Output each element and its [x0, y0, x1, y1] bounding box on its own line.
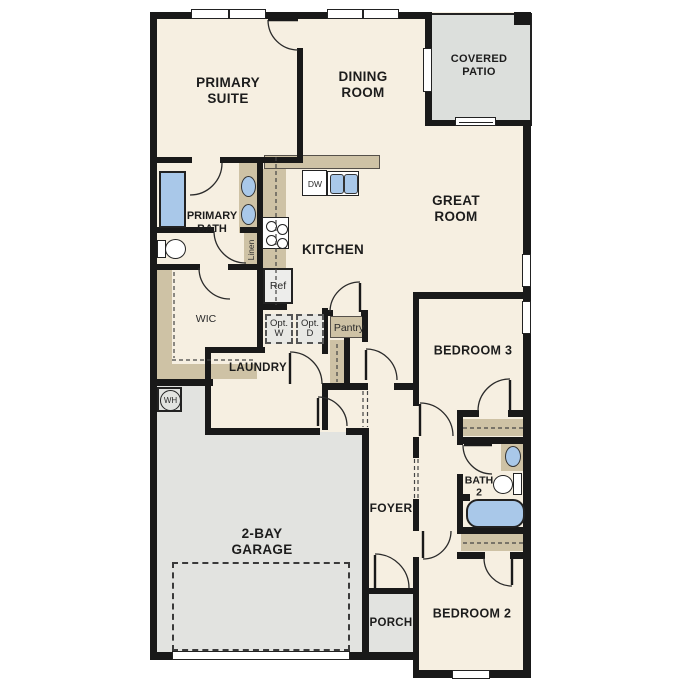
- refrigerator: Ref: [263, 268, 293, 304]
- window-bedroom2: [452, 670, 490, 679]
- room-label-bath2: BATH2: [465, 475, 493, 498]
- wall-bath2-west-b: [457, 474, 463, 530]
- optional-dryer-label: Opt.D: [301, 319, 319, 340]
- dishwasher-label: DW: [307, 179, 323, 189]
- hall-closet: [330, 340, 345, 383]
- wall-bedroom3-north: [413, 292, 531, 299]
- wall-kitchen-stub: [263, 303, 287, 310]
- wall-bath2-west-a: [457, 437, 463, 445]
- garage-door-outline: [172, 562, 350, 651]
- wall-east-d: [413, 557, 419, 673]
- wall-tub-bottom: [457, 527, 531, 534]
- wall-closet2-bottom-b: [510, 552, 531, 559]
- bedroom3-closet: [461, 419, 527, 436]
- floor-plan: Ref DW Opt.W Opt.D WH: [0, 0, 687, 687]
- wall-east-a: [413, 292, 419, 406]
- wall-porch-bottom: [368, 652, 415, 660]
- wall-hall-south-a: [322, 383, 368, 390]
- wall-garage-east: [362, 428, 369, 660]
- wall-wic-north-a: [156, 264, 200, 270]
- garage-door: [172, 651, 350, 660]
- wall-laundry-west: [205, 347, 211, 434]
- wall-suite-dining: [297, 48, 303, 160]
- patio-sliding-door: [455, 117, 496, 126]
- room-label-bedroom2: BEDROOM 2: [433, 607, 511, 622]
- wall-pantry-a: [328, 310, 333, 316]
- wall-foyer-porch: [368, 588, 415, 594]
- wall-east-b: [413, 437, 419, 458]
- bath2-toilet-bowl: [493, 475, 513, 494]
- wall-left: [150, 12, 157, 660]
- label-linen: Linen: [246, 240, 256, 261]
- wall-wic-south: [156, 379, 213, 386]
- wall-suite-bottom-a: [156, 157, 192, 163]
- room-label-bedroom3: BEDROOM 3: [434, 344, 512, 359]
- label-pantry: Pantry: [334, 322, 364, 334]
- toilet-primary-bowl: [165, 239, 186, 259]
- window-bedroom3: [522, 301, 531, 334]
- kitchen-sink: [327, 171, 359, 196]
- wall-laundry-north: [205, 347, 265, 353]
- room-label-kitchen: KITCHEN: [302, 242, 364, 258]
- wall-garage-north-a: [205, 428, 320, 435]
- wall-hall-closet-east: [344, 338, 350, 388]
- optional-washer: Opt.W: [265, 314, 293, 344]
- floor-foyer: [365, 383, 417, 592]
- bedroom2-closet: [461, 534, 527, 551]
- vanity-sink-1: [241, 176, 256, 197]
- room-label-wic: WIC: [196, 313, 216, 325]
- refrigerator-label: Ref: [270, 280, 286, 292]
- window-dining: [327, 9, 399, 19]
- range: [262, 217, 289, 249]
- dishwasher: DW: [302, 170, 327, 196]
- bath2-sink: [505, 446, 521, 467]
- wall-bedroom3-south-b: [508, 410, 531, 417]
- wall-closet2-bottom-a: [457, 552, 485, 559]
- room-label-laundry: LAUNDRY: [229, 362, 287, 376]
- room-label-primary-suite: PRIMARYSUITE: [196, 75, 260, 107]
- wall-bath-south-b: [240, 227, 258, 233]
- room-label-porch: PORCH: [369, 617, 412, 631]
- patio-post: [514, 12, 531, 25]
- room-label-primary-bath: PRIMARYBATH: [187, 210, 237, 236]
- wall-right: [523, 120, 531, 678]
- optional-dryer: Opt.D: [296, 314, 324, 344]
- room-label-dining-room: DININGROOM: [338, 69, 387, 101]
- wall-wic-north-b: [228, 264, 258, 270]
- wall-closet3-bottom: [457, 437, 531, 444]
- wall-east-c: [413, 499, 419, 531]
- water-heater-box: WH: [157, 387, 182, 412]
- room-label-foyer: FOYER: [370, 501, 413, 515]
- bath2-toilet-tank: [513, 473, 522, 495]
- room-label-covered-patio: COVEREDPATIO: [451, 53, 508, 79]
- window-dining-east: [423, 48, 432, 92]
- window-great-room: [522, 254, 531, 287]
- optional-washer-label: Opt.W: [270, 319, 288, 340]
- bathtub: [466, 499, 525, 528]
- vanity-sink-2: [241, 204, 256, 225]
- wall-laundry-east-b: [322, 384, 328, 430]
- window-primary-suite: [191, 9, 266, 19]
- room-label-garage: 2-BAYGARAGE: [231, 526, 292, 558]
- room-label-great-room: GREATROOM: [432, 193, 480, 225]
- wall-bath-kitchen: [257, 157, 263, 353]
- water-heater-label: WH: [164, 396, 177, 405]
- shower: [159, 171, 186, 228]
